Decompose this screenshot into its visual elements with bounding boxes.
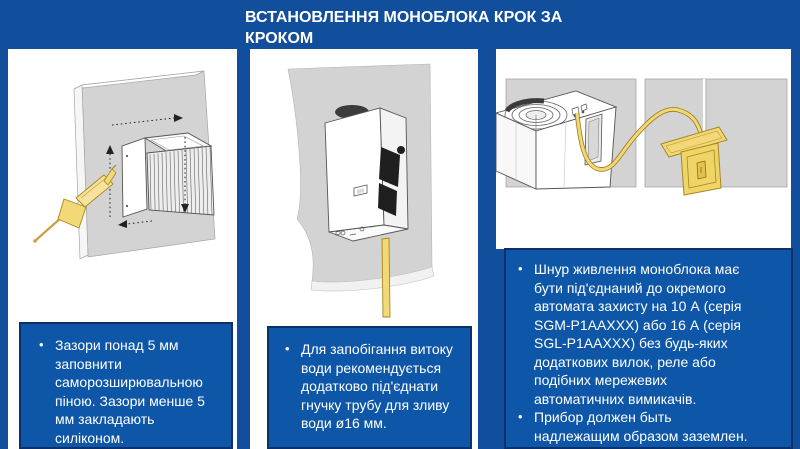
bullet-icon: • [285, 340, 301, 359]
drain-tube-illustration [250, 49, 478, 326]
note-bullet: • Зазори понад 5 мм заповнити саморозшир… [39, 336, 215, 447]
bullet-icon: • [39, 336, 55, 355]
bullet-icon: • [518, 260, 534, 279]
power-connection-illustration [496, 49, 791, 249]
step-1-note-box: • Зазори понад 5 мм заповнити саморозшир… [19, 322, 233, 449]
note-bullet: • Шнур живлення моноблока має бути під'є… [518, 260, 756, 408]
note-bullet: • Прибор должен быть надлежащим образом … [518, 408, 756, 445]
note-text: Прибор должен быть надлежащим образом за… [534, 408, 756, 445]
note-text: Зазори понад 5 мм заповнити саморозширюв… [55, 336, 215, 447]
step-3-panel [496, 49, 791, 249]
note-text: Для запобігання витоку води рекомендуєть… [301, 340, 459, 433]
bullet-icon: • [518, 408, 534, 427]
wall-sealing-illustration [8, 49, 237, 322]
slide: ВСТАНОВЛЕННЯ МОНОБЛОКА КРОК ЗА КРОКОМ [0, 0, 800, 449]
page-title: ВСТАНОВЛЕННЯ МОНОБЛОКА КРОК ЗА КРОКОМ [245, 7, 613, 49]
note-bullet: • Для запобігання витоку води рекомендує… [285, 340, 459, 433]
drain-tube [382, 238, 390, 317]
step-2-note-box: • Для запобігання витоку води рекомендує… [267, 326, 472, 449]
step-3-note-box: • Шнур живлення моноблока має бути під'є… [504, 248, 793, 449]
note-text: Шнур живлення моноблока має бути під'єдн… [534, 260, 756, 408]
